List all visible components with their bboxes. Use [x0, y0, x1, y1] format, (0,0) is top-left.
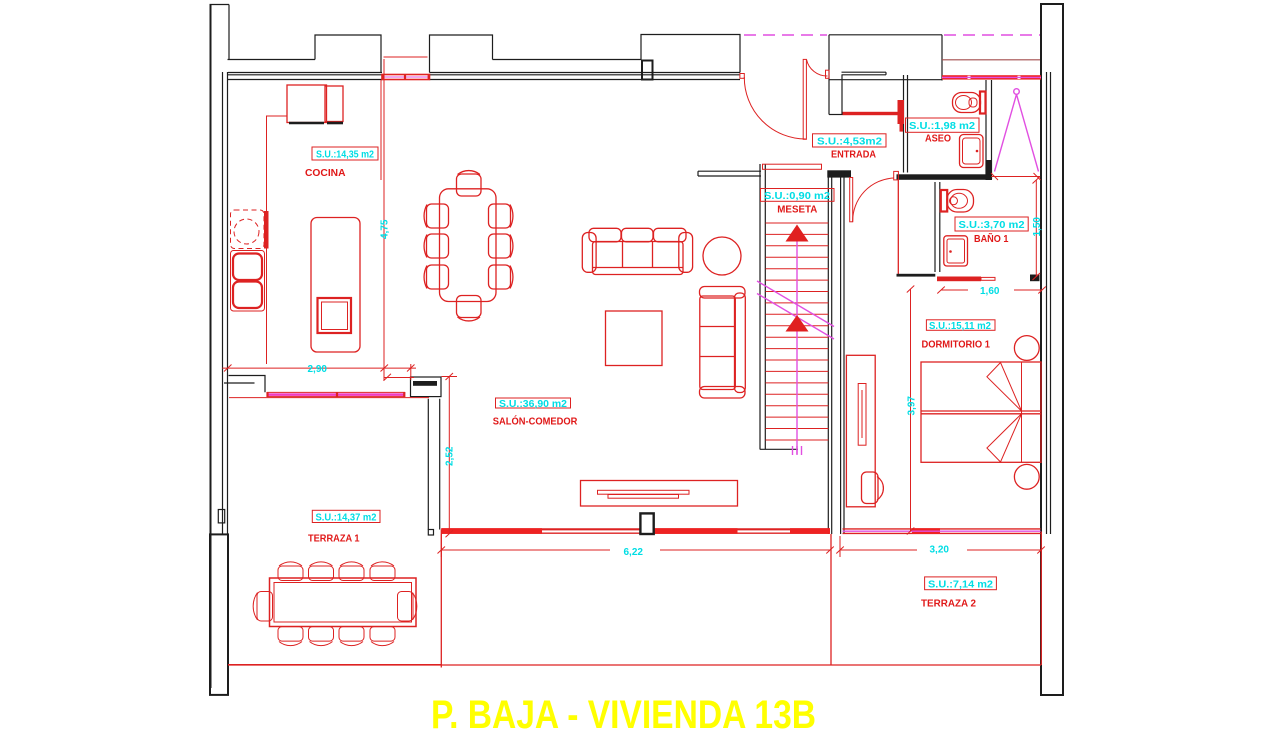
- svg-text:6,22: 6,22: [624, 547, 644, 558]
- svg-text:1,60: 1,60: [980, 286, 1000, 297]
- svg-text:DORMITORIO 1: DORMITORIO 1: [922, 339, 991, 351]
- svg-text:S.U.:14,35 m2: S.U.:14,35 m2: [316, 150, 374, 161]
- svg-text:ASEO: ASEO: [925, 133, 951, 145]
- svg-text:3,97: 3,97: [907, 396, 918, 416]
- svg-text:ENTRADA: ENTRADA: [831, 149, 876, 161]
- svg-text:BAÑO 1: BAÑO 1: [974, 232, 1009, 245]
- svg-text:S.U.:14,37 m2: S.U.:14,37 m2: [316, 513, 377, 524]
- svg-text:S.U.:36,90 m2: S.U.:36,90 m2: [499, 399, 567, 410]
- svg-text:S.U.:7,14 m2: S.U.:7,14 m2: [928, 580, 993, 591]
- svg-text:S.U.:0,90 m2: S.U.:0,90 m2: [764, 191, 830, 202]
- svg-text:P. BAJA - VIVIENDA 13B: P. BAJA - VIVIENDA 13B: [431, 693, 816, 737]
- svg-text:1,50: 1,50: [1032, 217, 1043, 237]
- svg-text:3,20: 3,20: [930, 545, 950, 556]
- svg-text:2,52: 2,52: [445, 446, 456, 466]
- svg-text:S.U.:15,11 m2: S.U.:15,11 m2: [929, 321, 991, 332]
- svg-text:MESETA: MESETA: [777, 204, 817, 216]
- svg-text:2,90: 2,90: [308, 364, 328, 375]
- svg-text:COCINA: COCINA: [305, 167, 346, 179]
- svg-text:SALÓN-COMEDOR: SALÓN-COMEDOR: [493, 415, 578, 428]
- svg-text:TERRAZA 1: TERRAZA 1: [308, 533, 360, 545]
- svg-text:4,75: 4,75: [380, 219, 391, 239]
- svg-text:TERRAZA 2: TERRAZA 2: [921, 598, 976, 610]
- svg-text:S.U.:1,98 m2: S.U.:1,98 m2: [909, 121, 975, 132]
- svg-text:S.U.:3,70 m2: S.U.:3,70 m2: [959, 220, 1025, 231]
- svg-text:S.U.:4,53m2: S.U.:4,53m2: [817, 137, 882, 148]
